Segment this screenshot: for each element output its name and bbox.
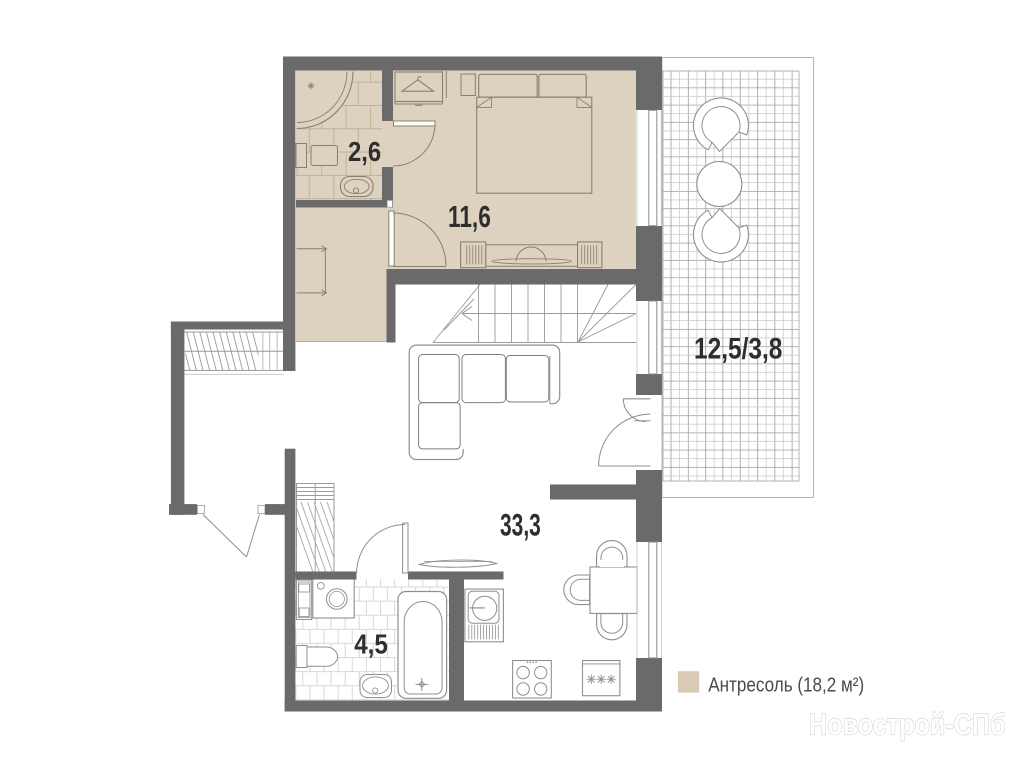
svg-text:12,5/3,8: 12,5/3,8 xyxy=(694,331,782,365)
svg-text:2,6: 2,6 xyxy=(348,135,381,167)
svg-text:Антресоль (18,2 м²): Антресоль (18,2 м²) xyxy=(708,673,864,696)
svg-text:4,5: 4,5 xyxy=(354,628,388,660)
svg-text:11,6: 11,6 xyxy=(448,199,491,234)
svg-text:Новострой-СПб: Новострой-СПб xyxy=(809,707,1006,741)
svg-text:33,3: 33,3 xyxy=(500,507,541,542)
